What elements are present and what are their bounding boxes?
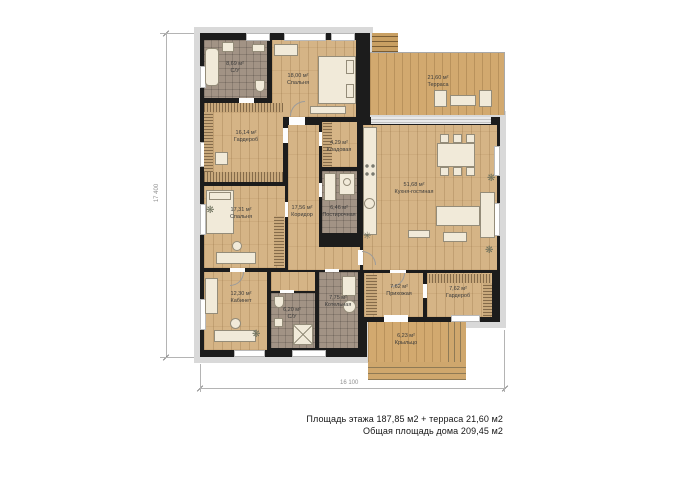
dining-table: [437, 143, 475, 167]
front-door-opening: [384, 315, 408, 322]
room-name: Гардероб: [234, 137, 258, 144]
door-laundry: [319, 183, 322, 197]
room-name: Терраса: [427, 82, 448, 89]
chair: [453, 167, 462, 176]
room-area: 7,62 м²: [449, 286, 467, 292]
boiler-unit: [342, 276, 356, 296]
summary-floor-area: Площадь этажа 187,85 м2 + терраса 21,60 …: [203, 414, 503, 426]
kitchen-sink: [364, 198, 375, 209]
plant-icon: ❋: [206, 206, 214, 216]
shelving-wardrobe-left-side: [204, 112, 213, 172]
door-boiler: [325, 269, 339, 272]
shower: [293, 324, 313, 345]
room-area: 51,68 м²: [404, 182, 425, 188]
area-summary: Площадь этажа 187,85 м2 + терраса 21,60 …: [203, 414, 503, 437]
desk-chair: [230, 318, 241, 329]
shelving-hallway: [366, 275, 377, 315]
room-name: С/У: [226, 68, 244, 75]
dimension-extension-bottom-b: [504, 330, 505, 392]
room-name: Спальня: [287, 80, 309, 87]
pillow: [346, 84, 354, 98]
shelving-wardrobe-right-top: [429, 274, 491, 283]
pillow: [346, 60, 354, 74]
plant-icon: ❋: [485, 246, 493, 256]
armchair: [434, 90, 447, 107]
room-name: Кладовая: [327, 147, 352, 154]
plant-icon: ❋: [252, 330, 260, 340]
room-name: Гардероб: [446, 293, 470, 300]
shelving-bedroom-left: [274, 216, 284, 266]
pillow: [209, 192, 231, 200]
door-storage: [319, 132, 322, 146]
door-su-bottom: [280, 290, 294, 293]
kitchen-counter: [363, 127, 377, 235]
terrace-glass-doors: [371, 117, 491, 124]
room-area: 4,29 м²: [330, 140, 348, 146]
room-area: 7,75 м²: [329, 295, 347, 301]
chair: [466, 167, 475, 176]
room-label-laundry: 6,46 м² Постирочная: [322, 205, 355, 219]
dresser: [274, 44, 298, 56]
chair: [440, 167, 449, 176]
sofa-section: [480, 192, 495, 238]
room-floor-corridor-horizontal: [288, 247, 360, 270]
desk-chair: [232, 241, 242, 251]
floor-plan-page: ✳ ❋ ❋ ❋ ❋ 8,69 м² С/У 18,00 м² Спальня 2…: [0, 0, 679, 480]
dimension-line-left: [166, 33, 167, 357]
room-floor-kitchen-living: [363, 125, 497, 270]
armchair: [215, 152, 228, 165]
room-label-wardrobe-right: 7,62 м² Гардероб: [446, 286, 470, 300]
room-label-su-bottom: 6,20 м² С/У: [283, 307, 301, 321]
sofa: [205, 278, 218, 314]
sink: [274, 318, 283, 327]
room-area: 17,31 м²: [231, 207, 252, 213]
desk: [216, 252, 256, 264]
room-label-corridor: 17,56 м² Коридор: [291, 205, 313, 219]
door-wardrobe-right: [423, 284, 427, 298]
bathtub: [205, 48, 219, 86]
room-floor-corridor-vertical: [288, 125, 319, 247]
chair: [453, 134, 462, 143]
room-area: 18,00 м²: [288, 73, 309, 79]
room-name: С/У: [283, 314, 301, 321]
window-top-1: [246, 33, 270, 41]
room-area: 12,30 м²: [231, 291, 252, 297]
room-name: Котельная: [325, 302, 352, 309]
toilet: [255, 80, 265, 92]
porch-steps-bottom: [368, 362, 466, 380]
dimension-extension-top-left: [160, 33, 194, 34]
room-name: Коридор: [291, 212, 313, 219]
room-name: Крыльцо: [395, 340, 417, 347]
armchair: [479, 90, 492, 107]
room-label-porch: 6,23 м² Крыльцо: [395, 333, 417, 347]
room-area: 6,23 м²: [397, 333, 415, 339]
room-label-bedroom-top: 18,00 м² Спальня: [287, 73, 309, 87]
window-bottom-1: [234, 350, 265, 357]
door-wardrobe-left: [283, 128, 288, 143]
dimension-extension-bottom-left: [160, 357, 194, 358]
room-label-terrace: 21,60 м² Терраса: [427, 75, 448, 89]
room-name: Кухня-гостиная: [395, 189, 434, 196]
coffee-table: [450, 95, 476, 106]
window-bottom-2: [292, 350, 326, 357]
sink: [252, 44, 265, 52]
room-area: 6,20 м²: [283, 307, 301, 313]
room-area: 6,46 м²: [330, 205, 348, 211]
sofa-section: [436, 206, 480, 226]
window-top-2: [284, 33, 326, 41]
dimension-label-bottom: 16 100: [340, 380, 358, 386]
room-label-storage: 4,29 м² Кладовая: [327, 140, 352, 154]
room-area: 16,14 м²: [236, 130, 257, 136]
summary-total-area: Общая площадь дома 209,45 м2: [203, 426, 503, 438]
stove-burners: [364, 162, 376, 178]
room-name: Постирочная: [322, 212, 355, 219]
room-label-boiler: 7,75 м² Котельная: [325, 295, 352, 309]
dimension-line-bottom: [200, 388, 505, 389]
shelving-wardrobe-left-top: [204, 103, 283, 112]
room-label-office: 12,30 м² Кабинет: [231, 291, 252, 305]
room-label-bedroom-left: 17,31 м² Спальня: [230, 207, 252, 221]
room-area: 17,56 м²: [292, 205, 313, 211]
chair: [440, 134, 449, 143]
room-area: 7,62 м²: [390, 284, 408, 290]
dimension-extension-bottom-a: [200, 364, 201, 392]
room-label-su-top: 8,69 м² С/У: [226, 61, 244, 75]
shelving-wardrobe-left-bottom: [204, 172, 283, 182]
room-label-kitchen-living: 51,68 м² Кухня-гостиная: [395, 182, 434, 196]
chair: [466, 134, 475, 143]
room-name: Кабинет: [231, 298, 252, 305]
laundry-shelf: [324, 173, 336, 201]
shelving-wardrobe-right-side: [483, 283, 492, 316]
plant-icon: ❋: [487, 174, 495, 184]
dimension-label-left: 17 400: [154, 184, 160, 202]
room-name: Прихожая: [386, 291, 412, 298]
coffee-table: [443, 232, 467, 242]
fridge-marker-icon: ✳: [363, 232, 371, 242]
washing-machine: [222, 42, 234, 52]
desk: [214, 330, 256, 342]
room-name: Спальня: [230, 214, 252, 221]
window-bottom-3: [451, 315, 480, 322]
room-label-wardrobe-left: 16,14 м² Гардероб: [234, 130, 258, 144]
room-floor-corridor-stub: [271, 272, 315, 291]
window-right-1: [494, 146, 500, 176]
room-area: 8,69 м²: [226, 61, 244, 67]
room-label-hallway: 7,62 м² Прихожая: [386, 284, 412, 298]
washer-drum: [343, 178, 351, 186]
exterior-stairs: [372, 33, 398, 52]
room-area: 21,60 м²: [428, 75, 449, 81]
window-top-3: [331, 33, 355, 41]
door-bedroom-top: [289, 117, 305, 125]
bench: [310, 106, 346, 114]
door-bedroom-left: [285, 202, 288, 217]
tv-stand: [408, 230, 430, 238]
dimension-tick: [502, 385, 508, 391]
